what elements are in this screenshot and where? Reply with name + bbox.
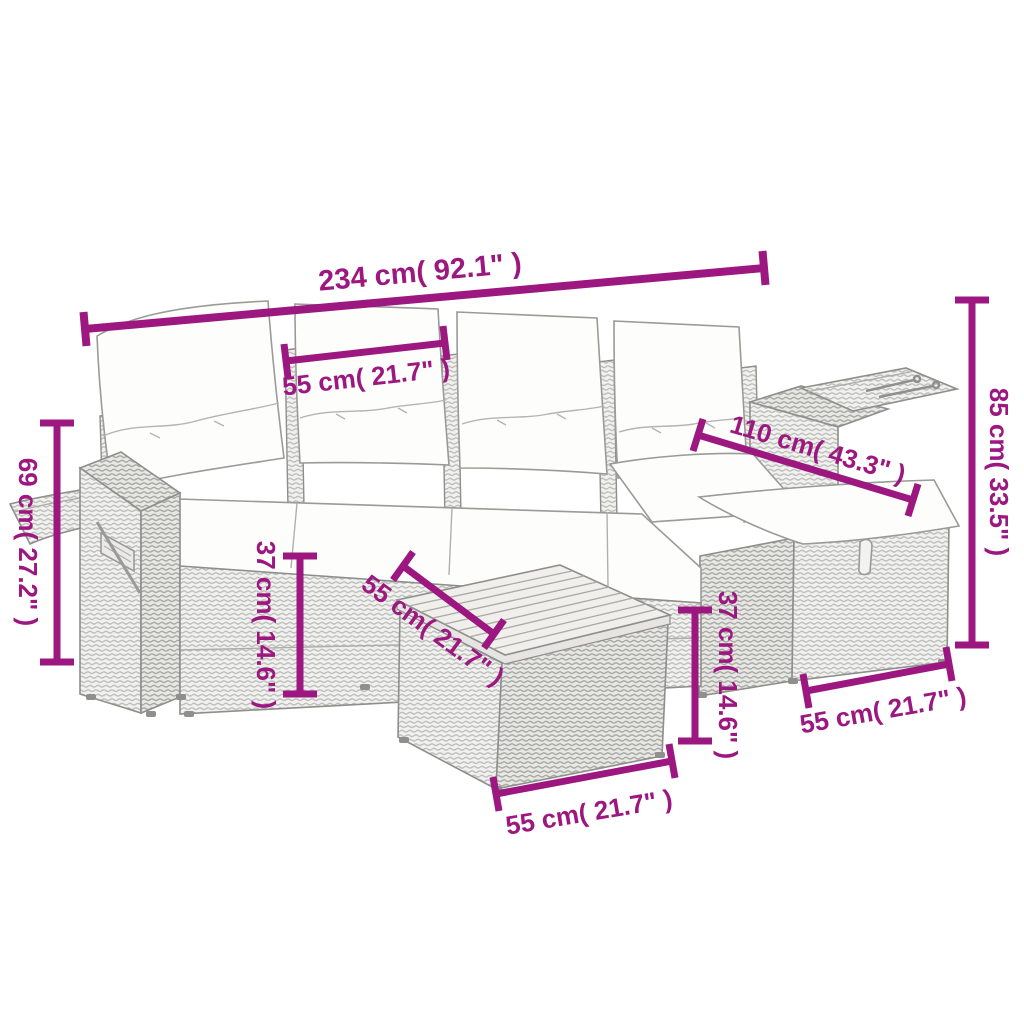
dim-seat-height-right-label: 37 cm( 14.6" ) (715, 591, 741, 759)
furniture-illustration (0, 0, 1024, 1024)
footstool-table (397, 565, 670, 789)
left-armrest (80, 452, 180, 713)
dim-armrest-height-label: 69 cm( 27.2" ) (15, 458, 41, 626)
product-dimension-diagram: 234 cm( 92.1" ) 55 cm( 21.7" ) 85 cm( 33… (0, 0, 1024, 1024)
dim-seat-height-left-label: 37 cm( 14.6" ) (253, 541, 279, 709)
dim-armrest-height-line (40, 423, 74, 662)
dim-overall-height-label: 85 cm( 33.5" ) (986, 388, 1012, 556)
